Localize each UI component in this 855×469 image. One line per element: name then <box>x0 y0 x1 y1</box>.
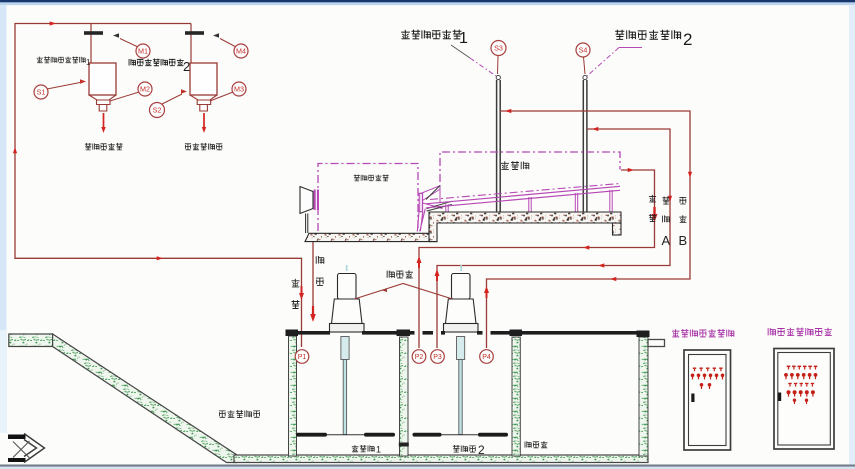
svg-text:P1: P1 <box>298 354 307 361</box>
svg-text:M3: M3 <box>234 85 244 94</box>
svg-text:M4: M4 <box>236 47 246 56</box>
svg-text:P2: P2 <box>415 354 424 361</box>
svg-text:1: 1 <box>86 58 91 67</box>
svg-text:P3: P3 <box>433 354 442 361</box>
svg-text:P4: P4 <box>482 354 491 361</box>
svg-text:1: 1 <box>376 445 381 455</box>
svg-text:B: B <box>679 233 688 248</box>
svg-text:S4: S4 <box>579 46 588 55</box>
svg-text:A: A <box>662 233 671 248</box>
svg-text:M1: M1 <box>138 47 148 56</box>
svg-text:1: 1 <box>459 30 468 47</box>
svg-text:S2: S2 <box>153 106 162 115</box>
svg-text:2: 2 <box>183 59 190 74</box>
svg-text:S3: S3 <box>494 44 503 53</box>
svg-text:M2: M2 <box>140 85 150 94</box>
svg-text:2: 2 <box>683 30 692 49</box>
svg-text:2: 2 <box>478 443 485 457</box>
svg-text:S1: S1 <box>37 88 46 97</box>
